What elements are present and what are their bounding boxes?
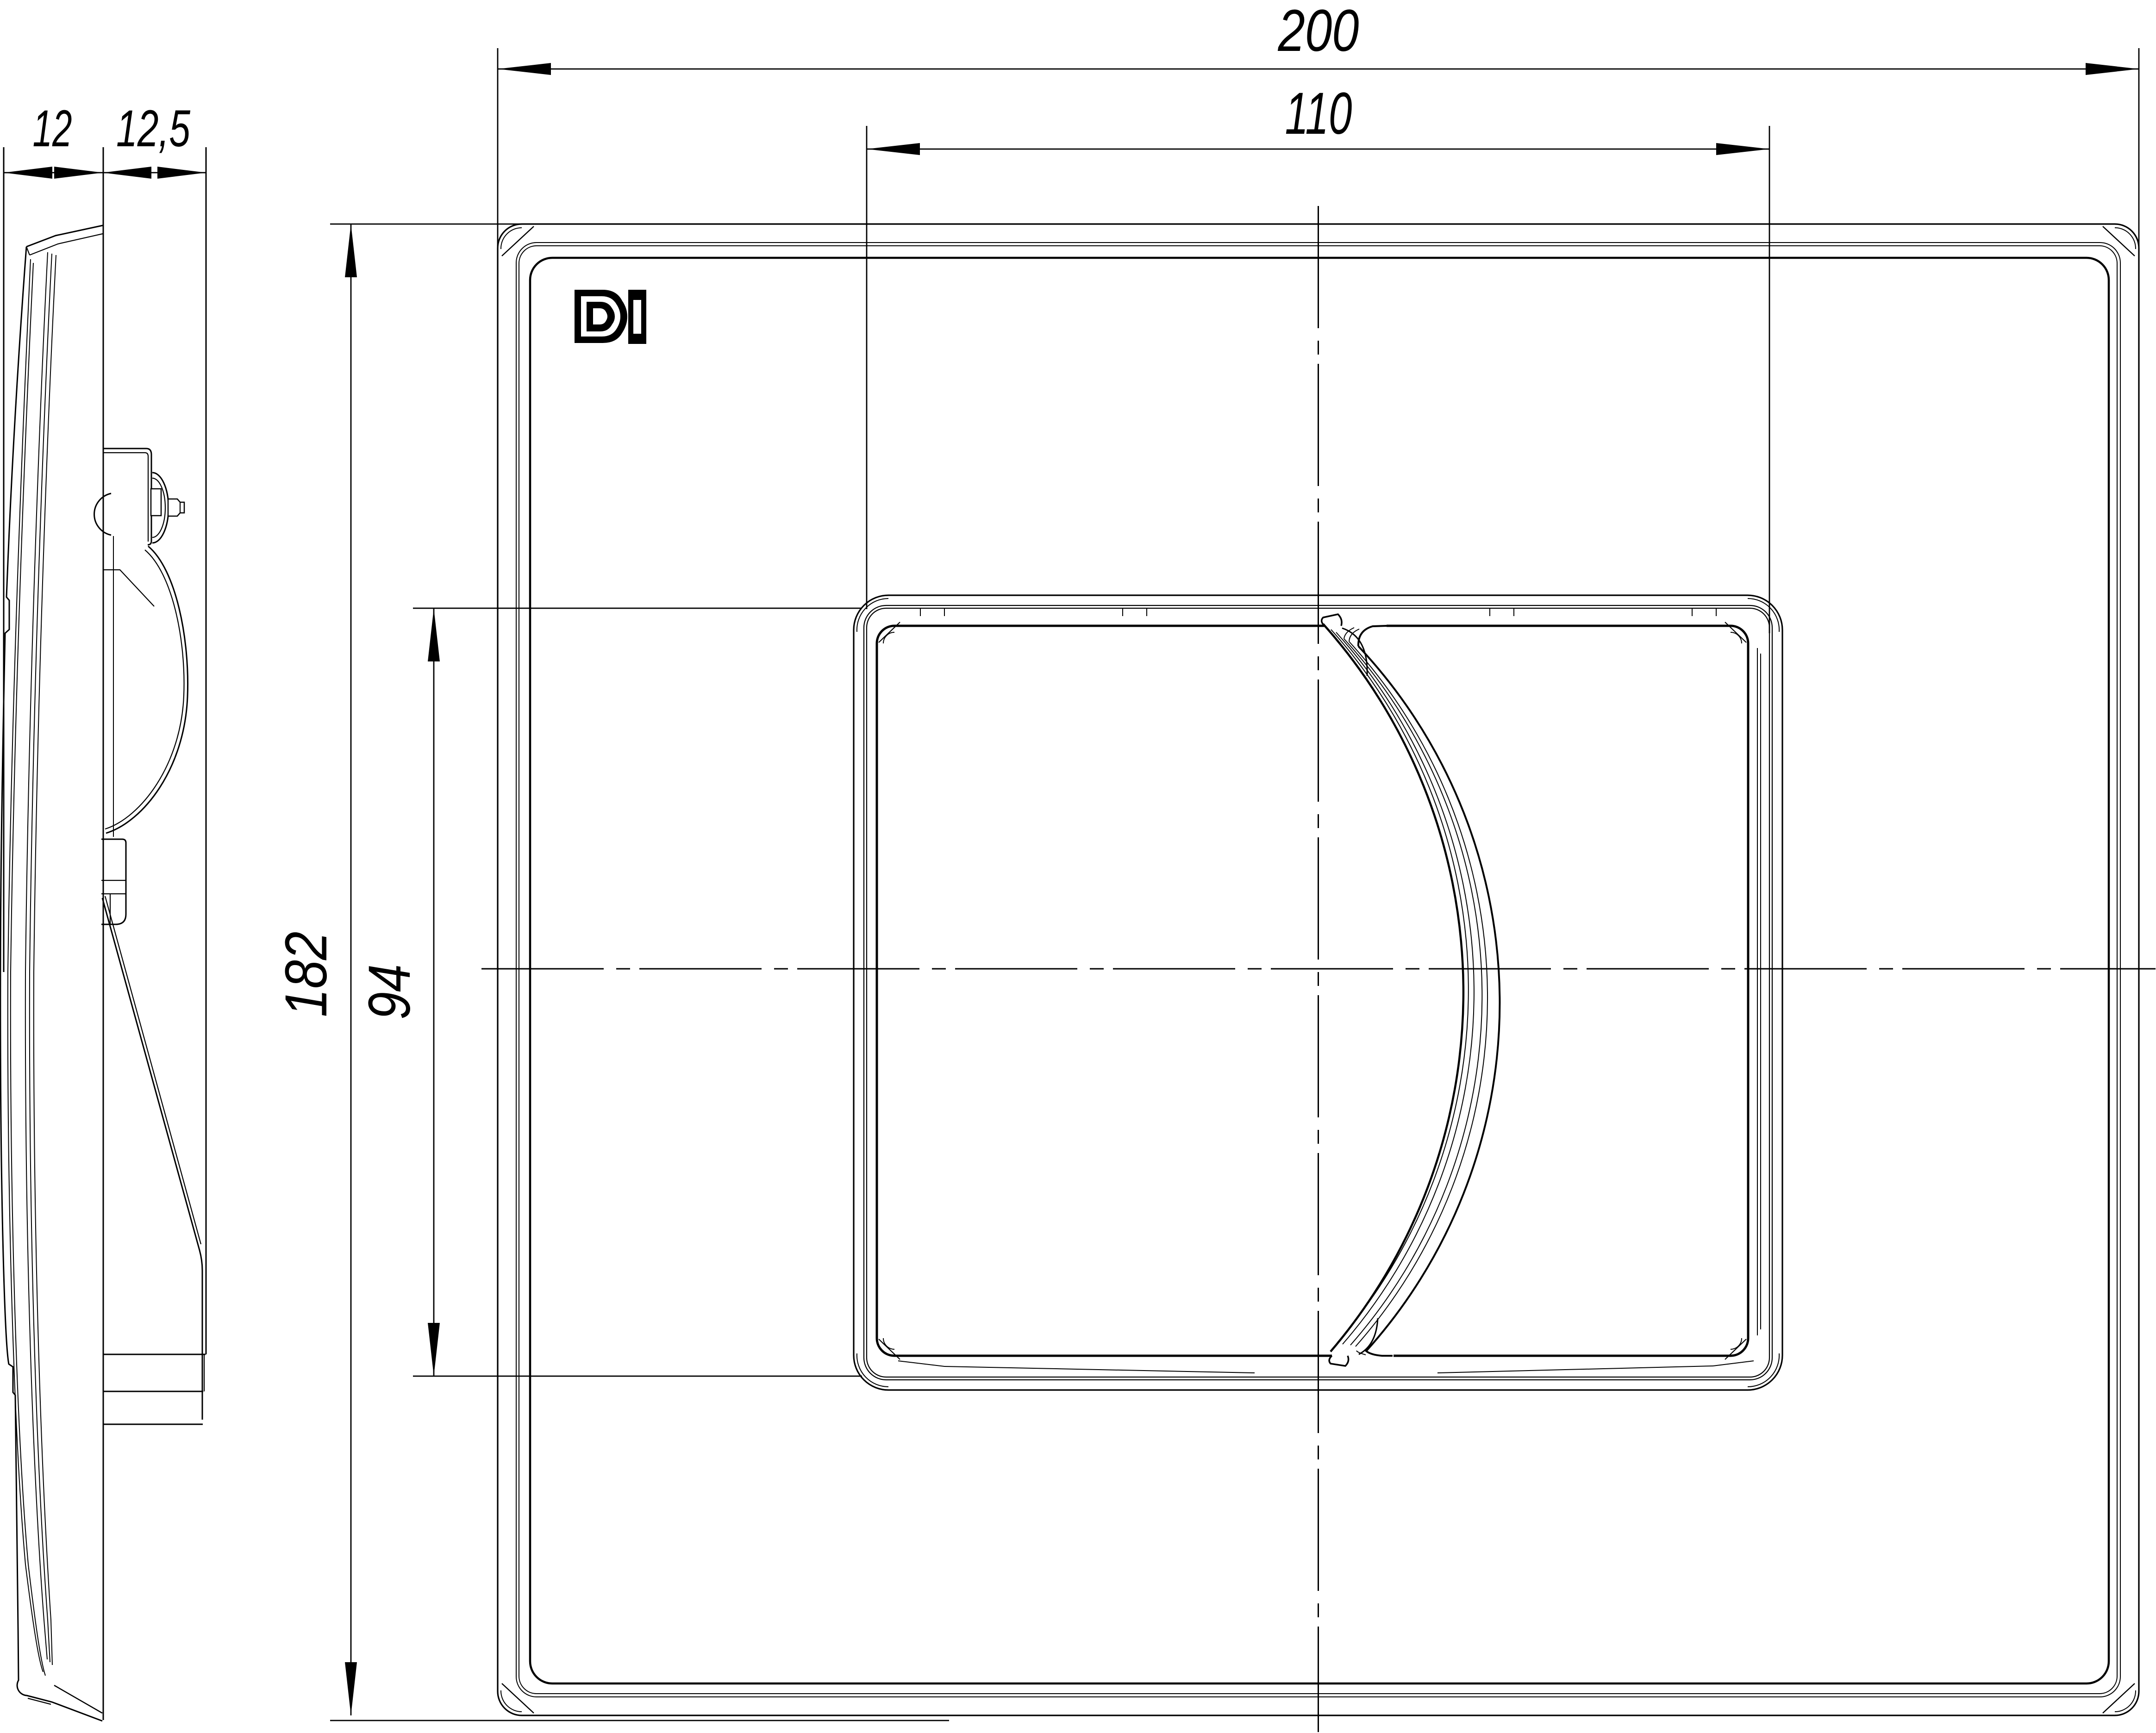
svg-text:94: 94 (356, 964, 423, 1020)
svg-text:182: 182 (273, 932, 339, 1017)
svg-text:200: 200 (1278, 0, 1359, 64)
svg-text:12,5: 12,5 (116, 100, 191, 157)
svg-text:12: 12 (33, 100, 72, 157)
svg-text:110: 110 (1285, 81, 1352, 147)
